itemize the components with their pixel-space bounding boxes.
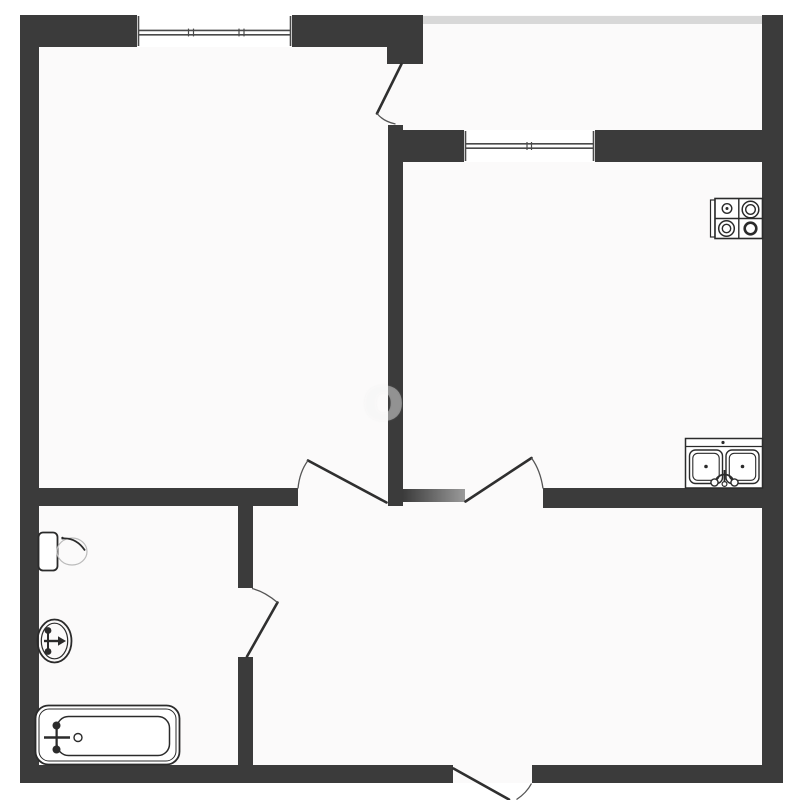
sink-counter-dot (721, 441, 724, 444)
wall-top-left-of-window (20, 15, 137, 47)
toilet-tank (39, 533, 58, 571)
basin-faucet-handle (45, 627, 52, 634)
living-room-window (137, 15, 292, 47)
wall-bathroom-right-upper (238, 506, 253, 588)
sink-faucet-base (722, 482, 727, 487)
toilet-hinge-dot (61, 537, 63, 539)
basin-faucet-handle (45, 648, 52, 655)
sink-faucet-handle (711, 479, 718, 486)
stove-burner-dot (726, 207, 729, 210)
wall-hall-kitchen-right (543, 488, 762, 508)
kitchen-window (464, 130, 595, 162)
tub-faucet-handle (53, 722, 61, 730)
sink-drain (741, 465, 745, 469)
sink-faucet-handle (731, 479, 738, 486)
balcony-edge (423, 16, 762, 24)
floor-plan: о (0, 0, 800, 800)
wall-kitchen-top-right-of-window (595, 130, 762, 162)
window-pane (464, 130, 595, 162)
wall-bathroom-right-lower (238, 657, 253, 765)
door-swing-arc (517, 784, 532, 800)
wall-bottom-left (20, 765, 453, 783)
sink-drain (704, 465, 708, 469)
wall-pier-balcony-door (387, 47, 423, 64)
wall-top-right-of-window (292, 15, 423, 47)
wall-bottom-right (532, 765, 783, 783)
wall-kitchen-left (388, 125, 403, 506)
wall-partition-gray (403, 489, 465, 502)
tub-drain (74, 734, 82, 742)
kitchen-sink-icon (686, 439, 763, 489)
wall-living-room-bottom (20, 488, 298, 506)
floor-plan-drawing (0, 0, 800, 800)
stove-icon (711, 199, 763, 239)
wall-right-exterior (762, 15, 783, 783)
tub-faucet-handle (53, 746, 61, 754)
bathtub-icon (36, 706, 180, 765)
wall-left-exterior (20, 15, 39, 783)
